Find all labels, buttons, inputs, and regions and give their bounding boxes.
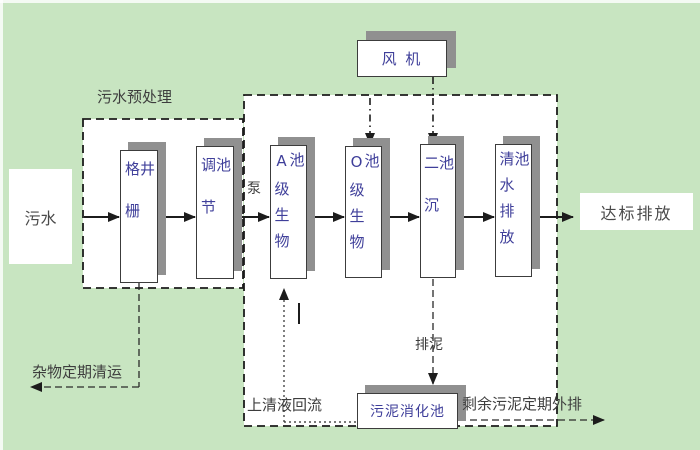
node-blower-label: 风 机 [382,48,423,69]
node-grid-well-label: 格栅井 [124,161,154,282]
node-regulating-tank: 调节池 [196,146,234,279]
excess-sludge-label: 剩余污泥定期外排 [462,393,582,414]
debris-removal-label: 杂物定期清运 [32,361,122,382]
node-discharge-label: 达标排放 [600,200,672,224]
node-secondary-clarifier-label: 二沉池 [423,155,453,277]
node-influent: 污水 [9,169,72,264]
node-clear-water-tank: 清水排放池 [495,144,532,277]
node-grid-well: 格栅井 [120,150,158,283]
node-a-bio-tank-label: A级生物池 [274,152,304,278]
node-influent-label: 污水 [24,205,56,229]
pretreatment-group-label: 污水预处理 [97,86,172,107]
flow-diagram-canvas: 污水 达标排放 格栅井 调节池 A级生物池 O级生物池 二沉池 清水排放池 风 … [0,0,700,450]
node-discharge: 达标排放 [580,193,693,230]
node-blower: 风 机 [357,40,447,77]
node-secondary-clarifier: 二沉池 [420,144,456,278]
node-clear-water-tank-label: 清水排放池 [499,151,529,276]
node-sludge-digester: 污泥消化池 [357,393,458,429]
node-sludge-digester-label: 污泥消化池 [370,401,445,421]
node-o-bio-tank: O级生物池 [345,146,382,278]
node-o-bio-tank-label: O级生物池 [349,153,379,277]
node-regulating-tank-label: 调节池 [200,157,230,278]
supernatant-reflux-label: 上清液回流 [247,394,322,415]
pump-label: 泵 [247,178,261,198]
node-a-bio-tank: A级生物池 [270,145,307,279]
sludge-discharge-label: 排泥 [415,334,443,354]
